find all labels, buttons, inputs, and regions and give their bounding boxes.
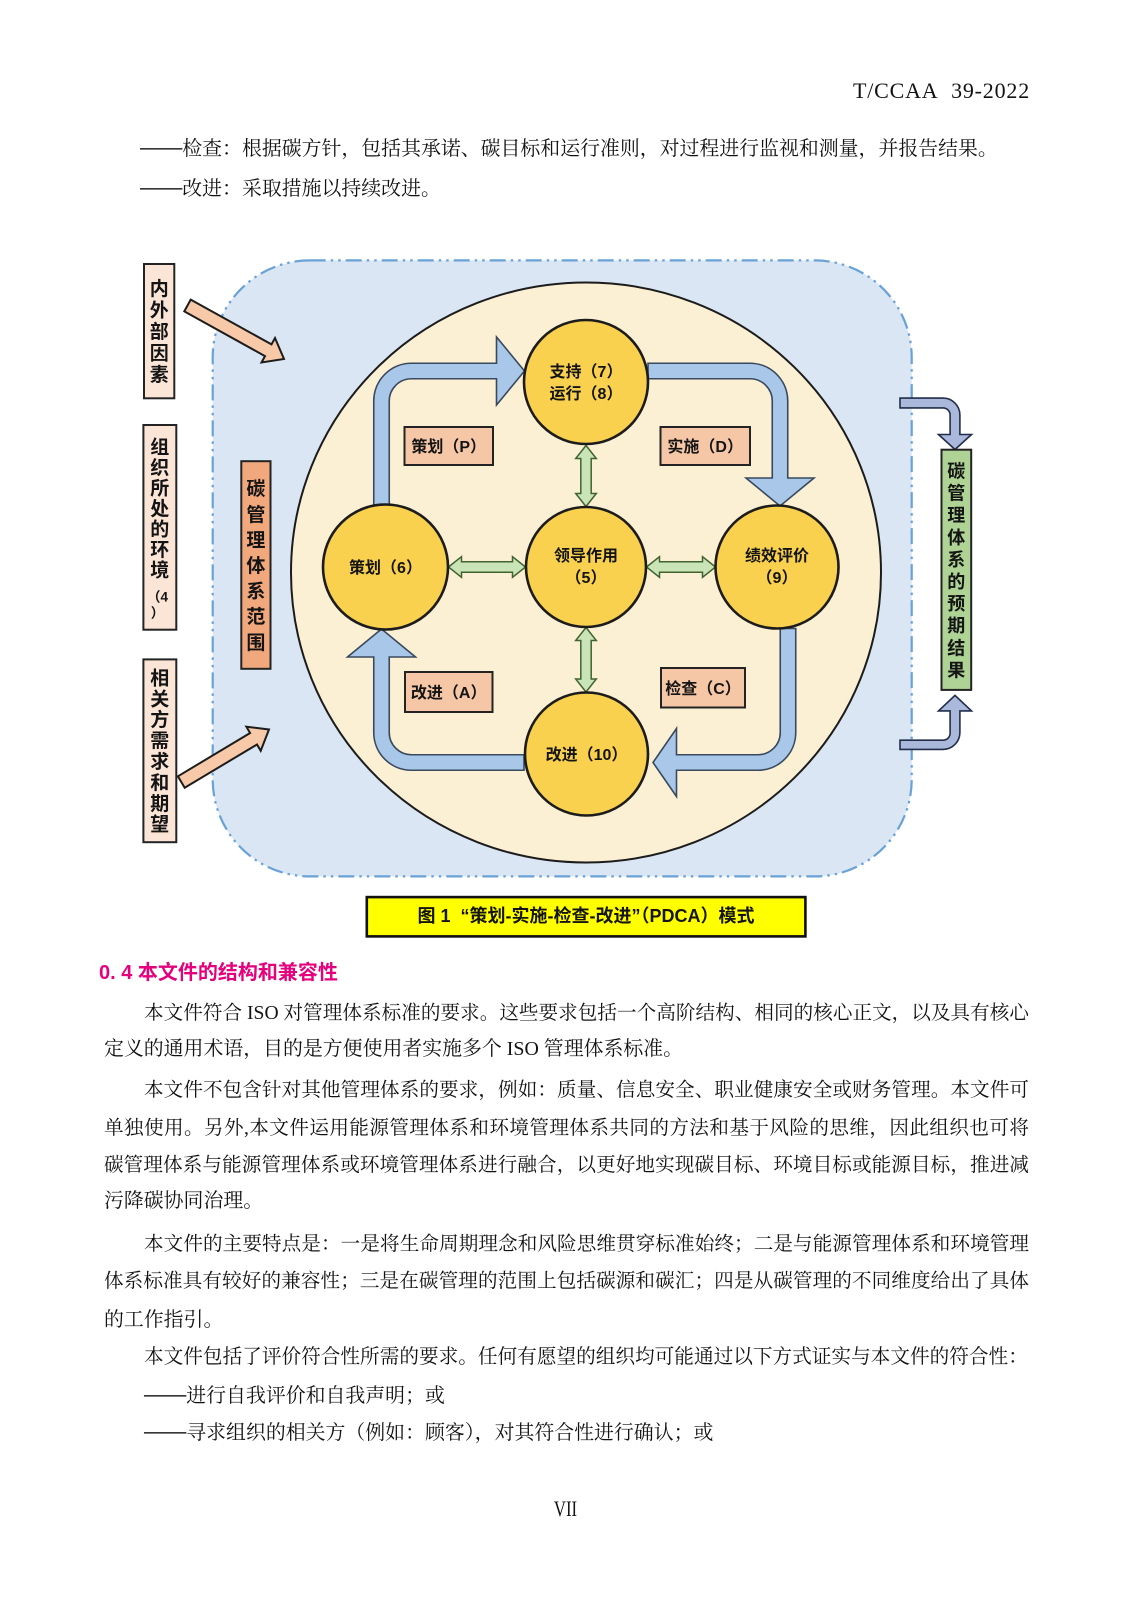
svg-text:需: 需 [150,731,169,752]
svg-text:组: 组 [150,437,169,459]
svg-text:系: 系 [246,581,265,603]
svg-text:运行（8）: 运行（8） [550,385,623,403]
svg-text:关: 关 [150,688,169,710]
svg-text:的: 的 [150,519,169,541]
svg-text:）: ） [151,606,165,621]
svg-text:体: 体 [947,528,965,548]
svg-text:因: 因 [150,342,169,364]
svg-text:策划（P）: 策划（P） [411,437,486,456]
svg-text:期: 期 [150,793,169,815]
svg-text:结: 结 [947,638,965,658]
svg-text:领导作用: 领导作用 [554,547,618,565]
svg-text:的: 的 [947,572,965,592]
svg-text:体: 体 [246,555,265,577]
svg-text:相: 相 [150,667,169,689]
svg-text:织: 织 [150,457,169,479]
svg-text:（5）: （5） [566,569,607,587]
svg-text:策划（6）: 策划（6） [349,558,422,577]
svg-text:部: 部 [150,320,169,343]
svg-text:求: 求 [150,751,169,773]
svg-text:（4: （4 [147,590,168,605]
svg-text:实施（D）: 实施（D） [667,437,743,456]
svg-text:内: 内 [150,278,169,300]
svg-text:改进（10）: 改进（10） [546,746,628,764]
svg-text:碳: 碳 [246,478,265,500]
svg-text:（9）: （9） [757,569,798,587]
svg-text:图 1 “策划-实施-检查-改进”（PDCA）模式: 图 1 “策划-实施-检查-改进”（PDCA）模式 [418,905,755,926]
svg-text:绩效评价: 绩效评价 [745,546,809,565]
svg-text:理: 理 [246,530,265,551]
svg-text:预: 预 [947,594,965,614]
svg-text:果: 果 [947,660,965,680]
svg-text:碳: 碳 [947,462,965,482]
svg-text:方: 方 [150,708,169,731]
svg-text:环: 环 [150,540,169,561]
svg-text:检查（C）: 检查（C） [665,679,741,698]
svg-text:管: 管 [246,503,265,526]
svg-text:处: 处 [150,498,169,520]
svg-text:围: 围 [246,633,265,654]
svg-text:和: 和 [150,772,169,794]
svg-text:所: 所 [150,478,169,500]
svg-text:理: 理 [947,506,965,526]
svg-text:支持（7）: 支持（7） [550,362,623,381]
svg-text:境: 境 [150,559,169,582]
svg-text:素: 素 [150,364,169,386]
svg-text:望: 望 [150,814,169,836]
svg-text:期: 期 [947,616,965,636]
svg-text:改进（A）: 改进（A） [411,684,487,702]
svg-text:范: 范 [246,606,265,628]
svg-text:管: 管 [947,483,965,504]
svg-text:外: 外 [150,299,169,321]
svg-text:系: 系 [947,549,965,570]
